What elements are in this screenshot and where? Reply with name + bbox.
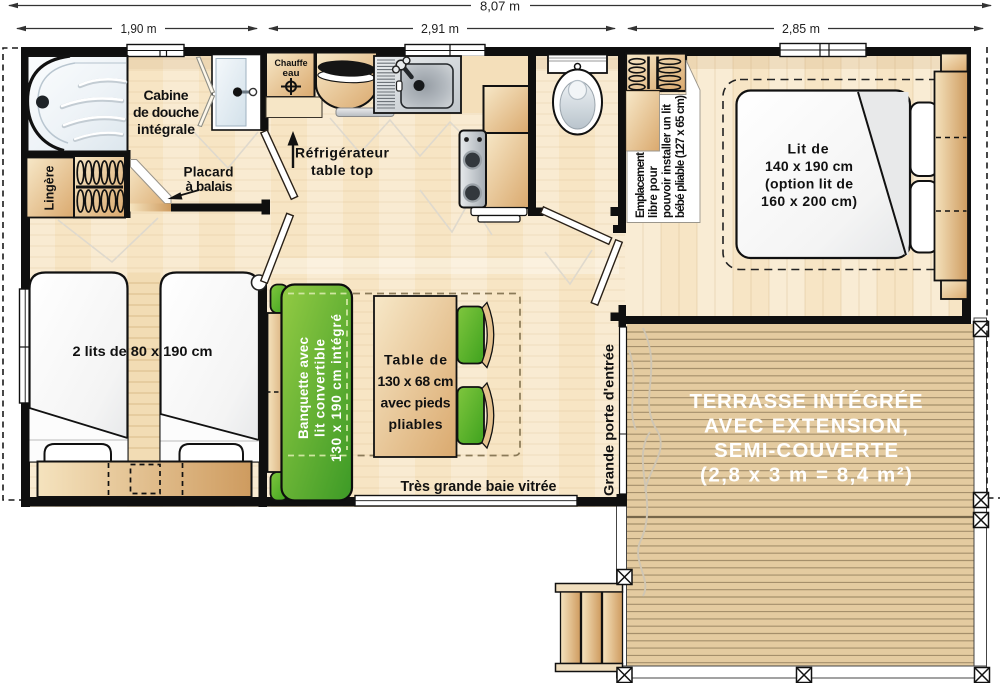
- svg-text:SEMI-COUVERTE: SEMI-COUVERTE: [714, 439, 898, 462]
- svg-text:lit convertible: lit convertible: [313, 339, 328, 437]
- svg-text:de douche: de douche: [133, 104, 199, 120]
- svg-text:AVEC EXTENSION,: AVEC EXTENSION,: [704, 415, 908, 438]
- svg-text:Emplacement: Emplacement: [635, 152, 647, 218]
- svg-text:Lit de: Lit de: [788, 141, 829, 157]
- svg-text:Lingère: Lingère: [42, 166, 57, 211]
- svg-text:2 lits de 80 x 190 cm: 2 lits de 80 x 190 cm: [73, 343, 213, 359]
- svg-text:avec pieds: avec pieds: [381, 395, 451, 411]
- svg-text:2,91 m: 2,91 m: [421, 22, 459, 36]
- svg-text:eau: eau: [283, 68, 300, 78]
- svg-text:(option lit de: (option lit de: [765, 176, 853, 192]
- svg-text:Cabine: Cabine: [144, 87, 189, 103]
- svg-text:130 x 190 cm intégré: 130 x 190 cm intégré: [329, 314, 344, 462]
- svg-text:pouvoir installer un lit: pouvoir installer un lit: [662, 104, 674, 218]
- svg-text:2,85 m: 2,85 m: [782, 22, 820, 36]
- svg-text:Placard: Placard: [184, 165, 234, 180]
- svg-text:(2,8 x 3 m = 8,4 m²): (2,8 x 3 m = 8,4 m²): [700, 464, 912, 487]
- svg-text:Banquette avec: Banquette avec: [296, 337, 311, 439]
- svg-text:bébé pliable (127 x 65 cm): bébé pliable (127 x 65 cm): [675, 95, 687, 218]
- svg-text:8,07 m: 8,07 m: [480, 0, 520, 14]
- svg-text:160 x 200 cm): 160 x 200 cm): [761, 193, 857, 209]
- svg-text:TERRASSE INTÉGRÉE: TERRASSE INTÉGRÉE: [690, 390, 923, 413]
- svg-text:Réfrigérateur: Réfrigérateur: [295, 145, 390, 161]
- svg-text:pliables: pliables: [389, 416, 443, 432]
- svg-text:130 x 68 cm: 130 x 68 cm: [378, 373, 454, 389]
- svg-text:libre pour: libre pour: [648, 165, 660, 218]
- svg-text:table top: table top: [311, 162, 373, 178]
- svg-text:Table de: Table de: [384, 352, 447, 368]
- svg-text:Chauffe: Chauffe: [275, 58, 308, 68]
- svg-text:Très grande baie vitrée: Très grande baie vitrée: [401, 479, 557, 495]
- svg-text:1,90 m: 1,90 m: [121, 22, 157, 36]
- svg-text:intégrale: intégrale: [137, 121, 195, 137]
- svg-text:Grande porte d'entrée: Grande porte d'entrée: [601, 344, 617, 496]
- svg-text:140 x 190 cm: 140 x 190 cm: [765, 158, 853, 174]
